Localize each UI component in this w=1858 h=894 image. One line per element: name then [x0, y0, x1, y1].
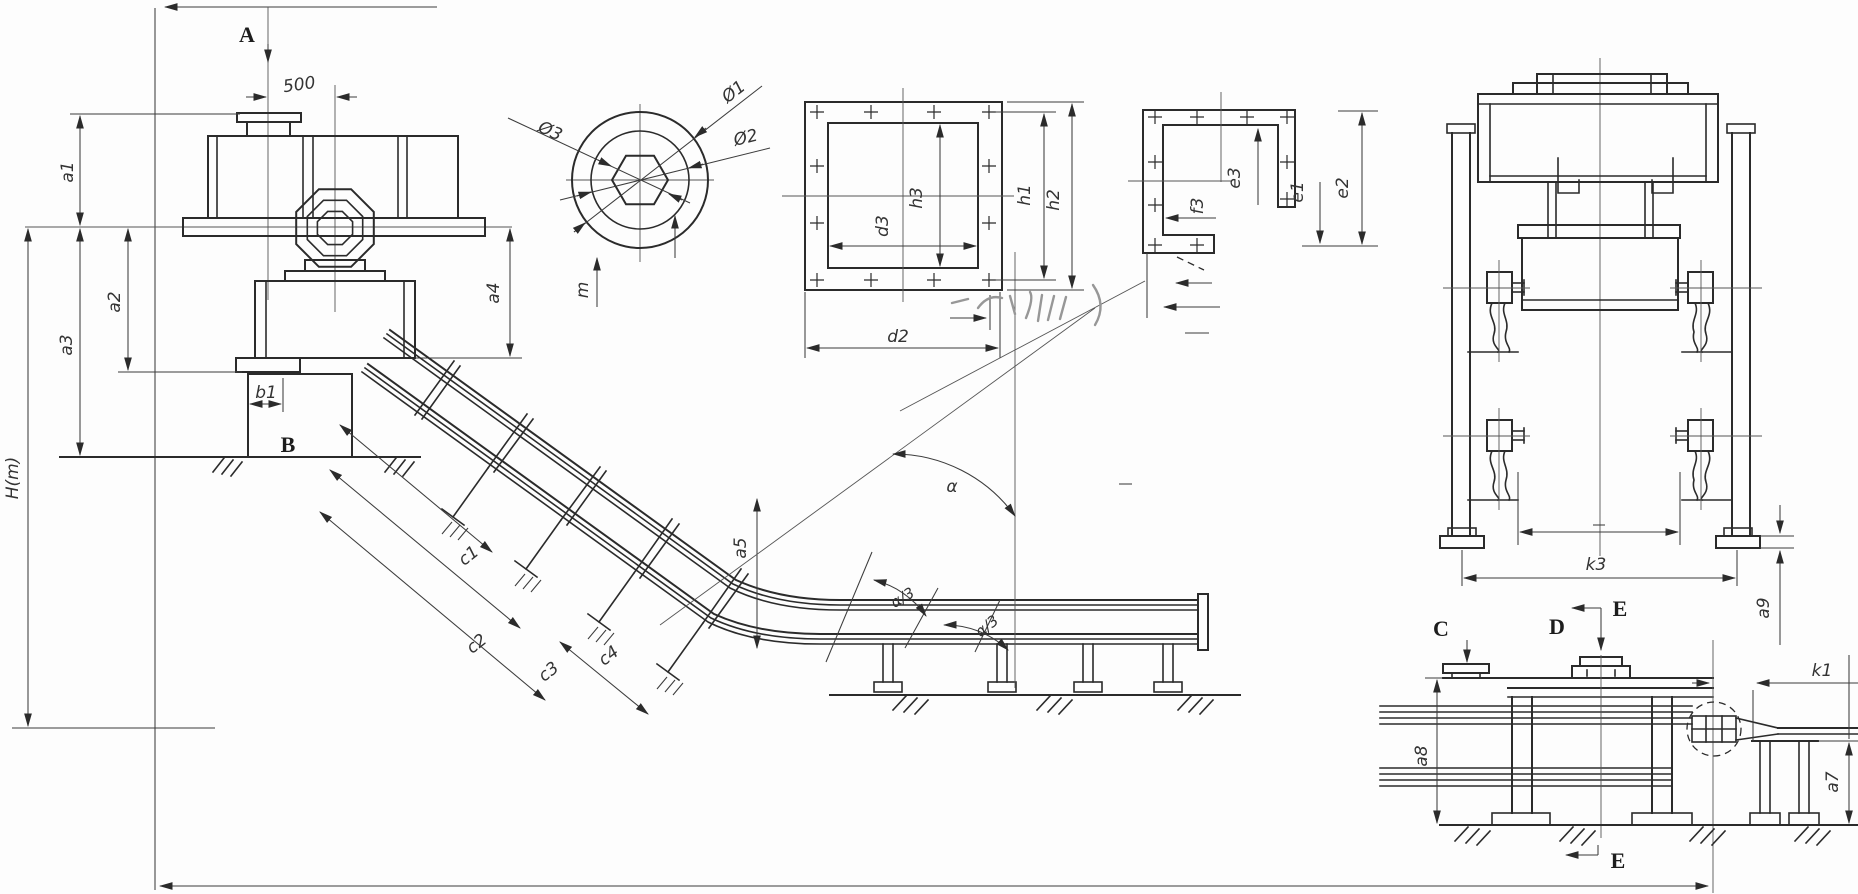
dim-d2: d2	[887, 327, 909, 347]
head-assembly	[25, 7, 512, 476]
drawing-sheet: A 500 a1 a2 a3 H(m) a4 b1 B	[0, 0, 1858, 894]
cross-frames	[415, 361, 748, 628]
section-e-bottom-label: E	[1611, 848, 1626, 873]
dim-a9: a9	[1754, 597, 1774, 618]
dim-a5: a5	[731, 537, 751, 558]
incline-dimensions: c1 c2 c3 c4 a5 α α/3 α/3	[320, 252, 1095, 714]
square-flange-detail: h3 d3 h1 h2 d2	[782, 88, 1145, 411]
dim-phi2: Ø2	[731, 126, 760, 152]
dim-h1: h1	[1015, 184, 1035, 206]
dim-k3: k3	[1586, 555, 1607, 575]
dim-e1: e1	[1288, 181, 1308, 202]
dim-f3: f3	[1188, 198, 1208, 215]
dim-alpha3-1: α/3	[887, 584, 917, 612]
dim-a2: a2	[105, 291, 125, 312]
engineering-drawing: A 500 a1 a2 a3 H(m) a4 b1 B	[0, 0, 1858, 894]
section-b-label: B	[281, 432, 296, 457]
ground-hatch-head	[213, 458, 414, 476]
dim-e3: e3	[1225, 167, 1245, 188]
channel-flange-detail: e3 f3 e1 e2	[1128, 92, 1378, 318]
dim-a1: a1	[58, 161, 78, 182]
dim-a4: a4	[484, 282, 504, 303]
trestle-legs	[442, 468, 703, 695]
dim-c4: c4	[595, 642, 623, 670]
ground-hatch-tail	[1455, 827, 1830, 845]
dim-c1: c1	[455, 542, 483, 570]
dim-alpha: α	[946, 477, 957, 497]
front-elevation-view: k3 a9	[1440, 58, 1794, 645]
horizontal-supports	[830, 644, 1240, 714]
dim-a7: a7	[1823, 771, 1843, 792]
shaft-section-detail: Ø1 Ø2 Ø3 m	[508, 77, 770, 307]
dim-alpha3-2: α/3	[972, 611, 1002, 640]
dim-phi1: Ø1	[717, 77, 749, 108]
dim-a3: a3	[57, 334, 77, 355]
dim-c3: c3	[535, 658, 563, 686]
section-d-label: D	[1549, 614, 1565, 639]
dim-H: H(m)	[3, 457, 23, 500]
dim-a8: a8	[1412, 745, 1432, 766]
dim-h2: h2	[1044, 189, 1064, 211]
dim-b1: b1	[255, 383, 277, 403]
section-c-label: C	[1433, 616, 1449, 641]
roller-assemblies	[1443, 260, 1762, 510]
dim-k1: k1	[1812, 661, 1833, 681]
dim-e2: e2	[1333, 177, 1353, 198]
overall-reference-lines	[12, 7, 1708, 890]
dim-500: 500	[282, 73, 317, 97]
dim-phi3: Ø3	[534, 117, 565, 146]
section-a-label: A	[239, 22, 255, 47]
tail-side-view: C D E	[1380, 596, 1858, 893]
dim-h3: h3	[907, 187, 927, 209]
dim-m: m	[573, 282, 593, 299]
dim-d3: d3	[873, 215, 893, 237]
section-e-top-label: E	[1613, 596, 1628, 621]
